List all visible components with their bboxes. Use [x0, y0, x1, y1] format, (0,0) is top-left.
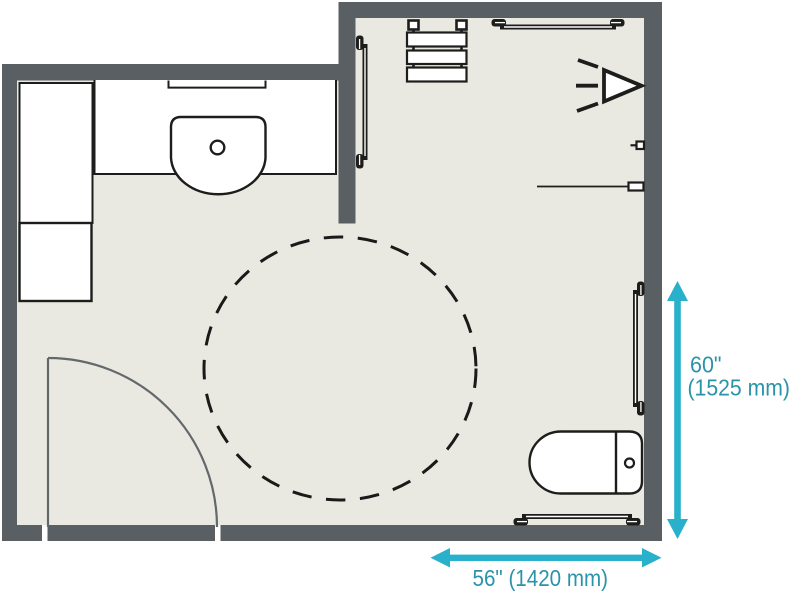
svg-text:56" (1420 mm): 56" (1420 mm): [473, 565, 609, 591]
svg-text:(1525 mm): (1525 mm): [688, 375, 791, 401]
